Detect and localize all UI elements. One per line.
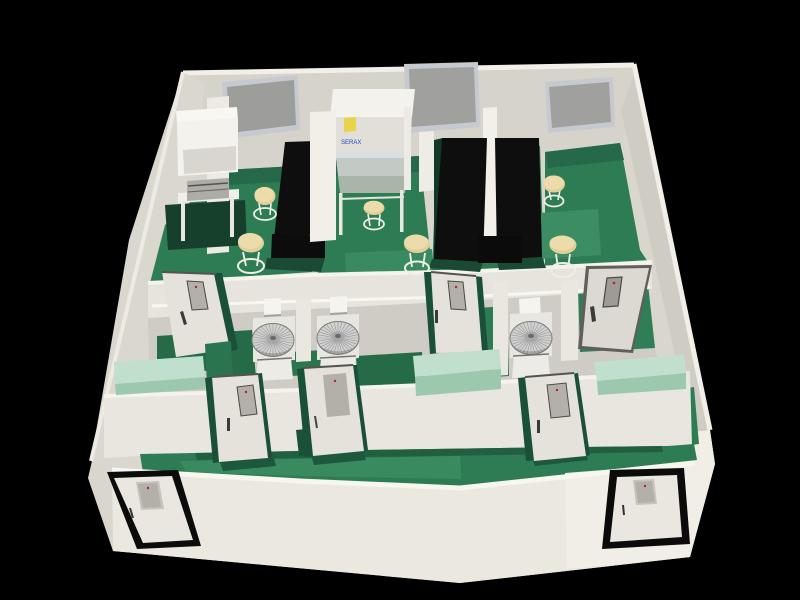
svg-text:SERAX: SERAX [341, 140, 361, 146]
